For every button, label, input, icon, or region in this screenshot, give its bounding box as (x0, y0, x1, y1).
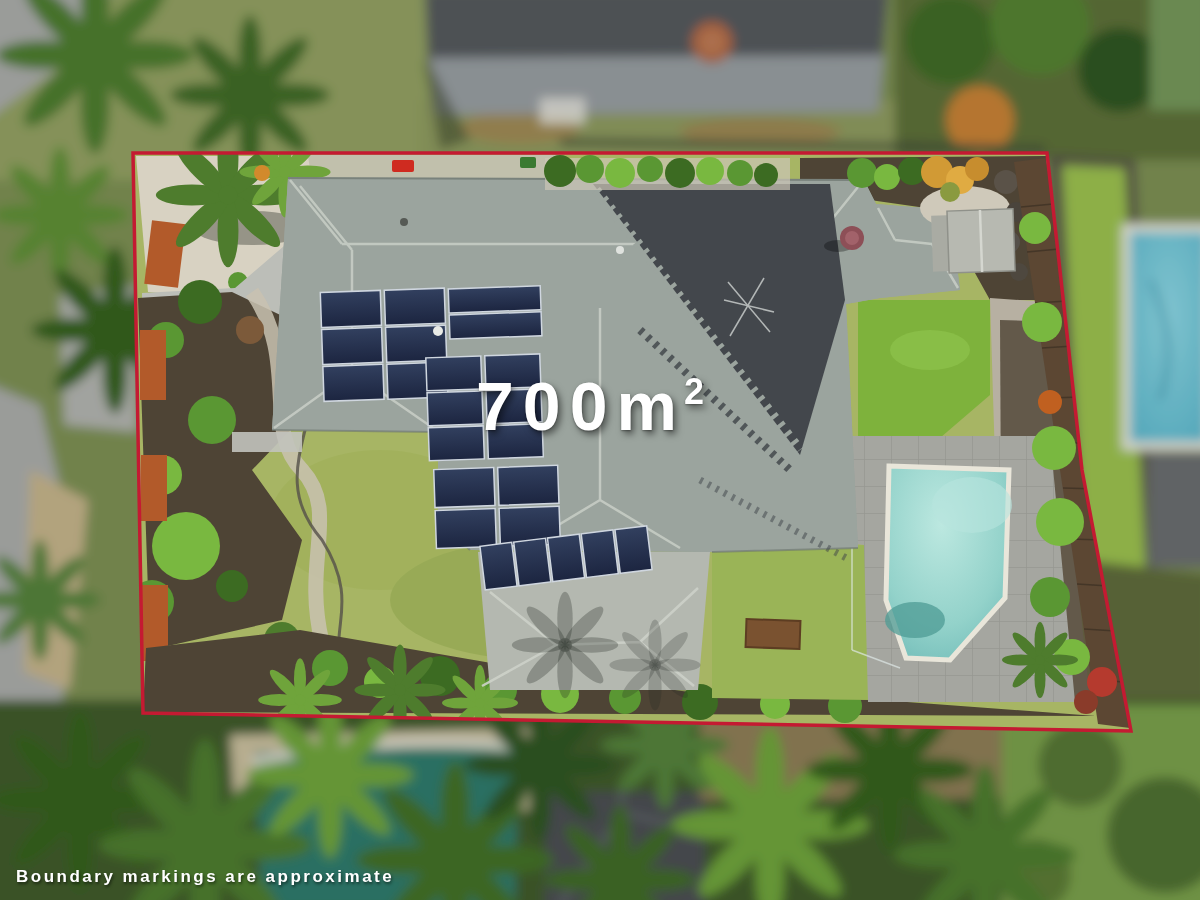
garden-shed (931, 209, 1015, 274)
red-object (392, 160, 414, 172)
area-value: 700m (476, 368, 686, 444)
green-object (520, 157, 536, 168)
aerial-property-photo: 700m2 Boundary markings are approximate (0, 0, 1200, 900)
front-hedge (544, 155, 790, 190)
front-path (232, 432, 302, 452)
timber-box (746, 619, 801, 649)
gold-pot (254, 165, 270, 181)
roof-vent (433, 326, 443, 336)
area-label: 700m2 (476, 372, 706, 440)
rust-fence-panels (140, 330, 168, 661)
area-exponent: 2 (684, 371, 704, 412)
boundary-disclaimer: Boundary markings are approximate (16, 867, 394, 887)
aerial-scene (0, 0, 1200, 900)
palm-shadow (512, 592, 618, 698)
